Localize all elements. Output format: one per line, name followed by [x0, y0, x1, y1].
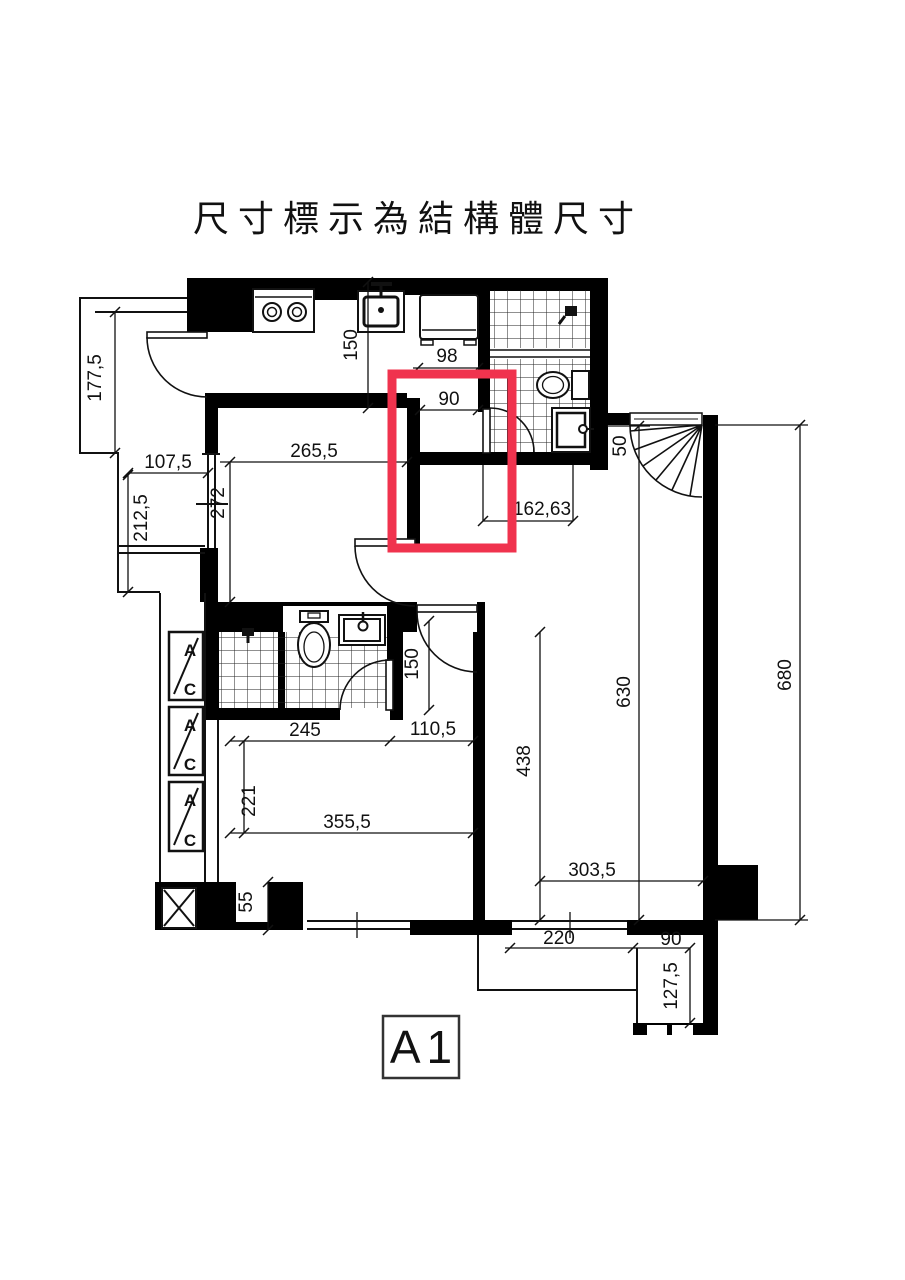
- ac-label-top: A: [184, 791, 196, 810]
- dimension-label: 110,5: [410, 719, 456, 740]
- dimension-label: 355,5: [323, 812, 371, 833]
- dimension-label: 303,5: [568, 860, 616, 881]
- dimension-label: 630: [614, 676, 635, 708]
- dimension-label: 150: [402, 648, 423, 680]
- shower-head-icon: [242, 628, 254, 636]
- dimension-label: 162,63: [513, 499, 571, 520]
- dimension-label: 55: [236, 891, 257, 912]
- drawing-label: A1: [383, 1016, 459, 1078]
- ac-unit: A C: [169, 632, 203, 700]
- dimension-label: 220: [543, 928, 575, 949]
- kitchen-sink: [358, 283, 404, 332]
- dimension-label: 98: [436, 346, 457, 367]
- dimension-label: 438: [514, 745, 535, 777]
- ac-label-top: A: [184, 716, 196, 735]
- dimension-label: 680: [775, 659, 796, 691]
- dimension-label: 90: [660, 929, 681, 950]
- ac-unit: A C: [169, 707, 203, 775]
- floor-plan-drawing: A C A C A C: [0, 0, 905, 1280]
- dimension-label: 245: [289, 720, 321, 741]
- door-leaf: [483, 409, 490, 453]
- ac-units: A C A C A C: [169, 632, 203, 851]
- stove: [253, 289, 314, 332]
- ac-label-top: A: [184, 641, 196, 660]
- dimension-label: 150: [341, 329, 362, 361]
- column-marker-icon: [162, 888, 196, 928]
- dimension-label: 107,5: [144, 452, 192, 473]
- door-leaf: [147, 332, 207, 338]
- door-leaf: [417, 605, 477, 612]
- ac-unit: A C: [169, 782, 203, 851]
- dimension-label: 265,5: [290, 441, 338, 462]
- shower-head-icon: [565, 306, 577, 316]
- dimension-label: 50: [610, 435, 631, 456]
- toilet-tank: [572, 371, 589, 399]
- refrigerator: [420, 295, 478, 345]
- drawing-label-text: A1: [390, 1021, 458, 1073]
- dimension-label: 272: [208, 487, 229, 519]
- dimension-label: 212,5: [131, 494, 152, 542]
- dimension-label: 127,5: [661, 962, 682, 1010]
- ac-label-bottom: C: [184, 755, 196, 774]
- dimension-label: 221: [239, 785, 260, 817]
- ac-label-bottom: C: [184, 831, 196, 850]
- dimension-label: 177,5: [85, 354, 106, 402]
- floor-plan-canvas: 尺寸標示為結構體尺寸: [0, 0, 905, 1280]
- ac-label-bottom: C: [184, 680, 196, 699]
- door-leaf: [386, 660, 393, 710]
- dimension-label: 90: [438, 389, 459, 410]
